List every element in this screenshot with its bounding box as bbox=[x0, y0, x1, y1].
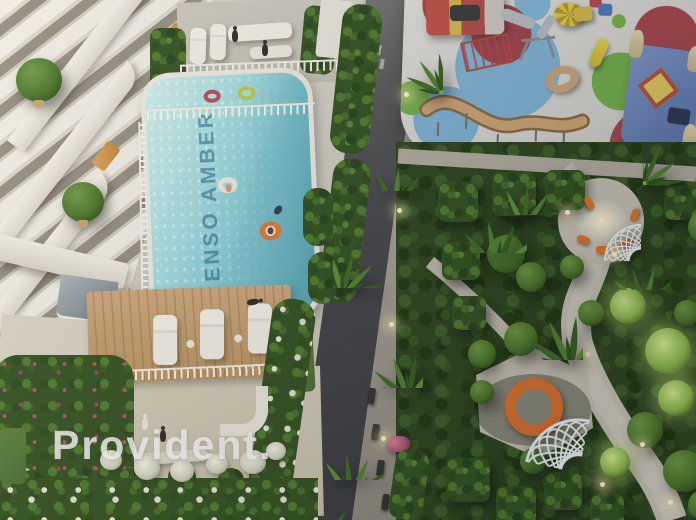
sun-lounger bbox=[153, 315, 177, 365]
play-tower bbox=[598, 4, 612, 16]
sun-lounger bbox=[209, 24, 226, 61]
path-light bbox=[600, 482, 605, 487]
palm-tree bbox=[643, 95, 696, 185]
balcony-plant bbox=[62, 182, 104, 222]
garden-tree bbox=[674, 300, 696, 326]
palm-tree bbox=[351, 2, 443, 94]
palm-tree bbox=[602, 195, 696, 290]
sun-lounger bbox=[200, 309, 224, 359]
path-light bbox=[585, 352, 590, 357]
trimmed-hedge bbox=[496, 486, 536, 520]
path-light bbox=[668, 500, 673, 505]
uplit-tree bbox=[600, 447, 630, 477]
trimmed-hedge bbox=[446, 458, 490, 502]
plant-pot bbox=[78, 220, 88, 228]
side-table bbox=[186, 340, 194, 348]
balcony-plant bbox=[16, 58, 62, 102]
uplit-tree bbox=[610, 288, 646, 324]
poolside-plants bbox=[303, 188, 333, 246]
uplit-tree bbox=[645, 328, 691, 374]
plant-pot bbox=[34, 100, 44, 108]
aerial-render-scene: ENSO AMBER bbox=[0, 0, 696, 520]
path-light bbox=[640, 442, 645, 447]
dome-climber bbox=[612, 14, 626, 28]
palm-tree bbox=[505, 120, 600, 215]
perimeter-hedge bbox=[0, 478, 318, 520]
palm-tree bbox=[323, 288, 423, 388]
palm-tree bbox=[463, 240, 583, 360]
person bbox=[262, 44, 268, 56]
uplit-tree bbox=[658, 380, 694, 416]
side-table bbox=[234, 334, 242, 342]
garden-tree bbox=[627, 412, 663, 448]
trimmed-hedge bbox=[590, 494, 624, 520]
person bbox=[232, 30, 238, 42]
sun-lounger bbox=[189, 28, 206, 65]
play-tower bbox=[573, 6, 592, 22]
palm-tree bbox=[332, 468, 412, 520]
provident-watermark: Provident. bbox=[52, 422, 272, 469]
trimmed-hedge bbox=[544, 472, 582, 510]
swimmer bbox=[267, 227, 273, 234]
trampoline bbox=[450, 5, 480, 22]
palm-tree bbox=[320, 384, 416, 480]
castle-turret bbox=[628, 29, 646, 59]
lawn-strip bbox=[0, 428, 26, 484]
swimmer bbox=[225, 184, 231, 192]
